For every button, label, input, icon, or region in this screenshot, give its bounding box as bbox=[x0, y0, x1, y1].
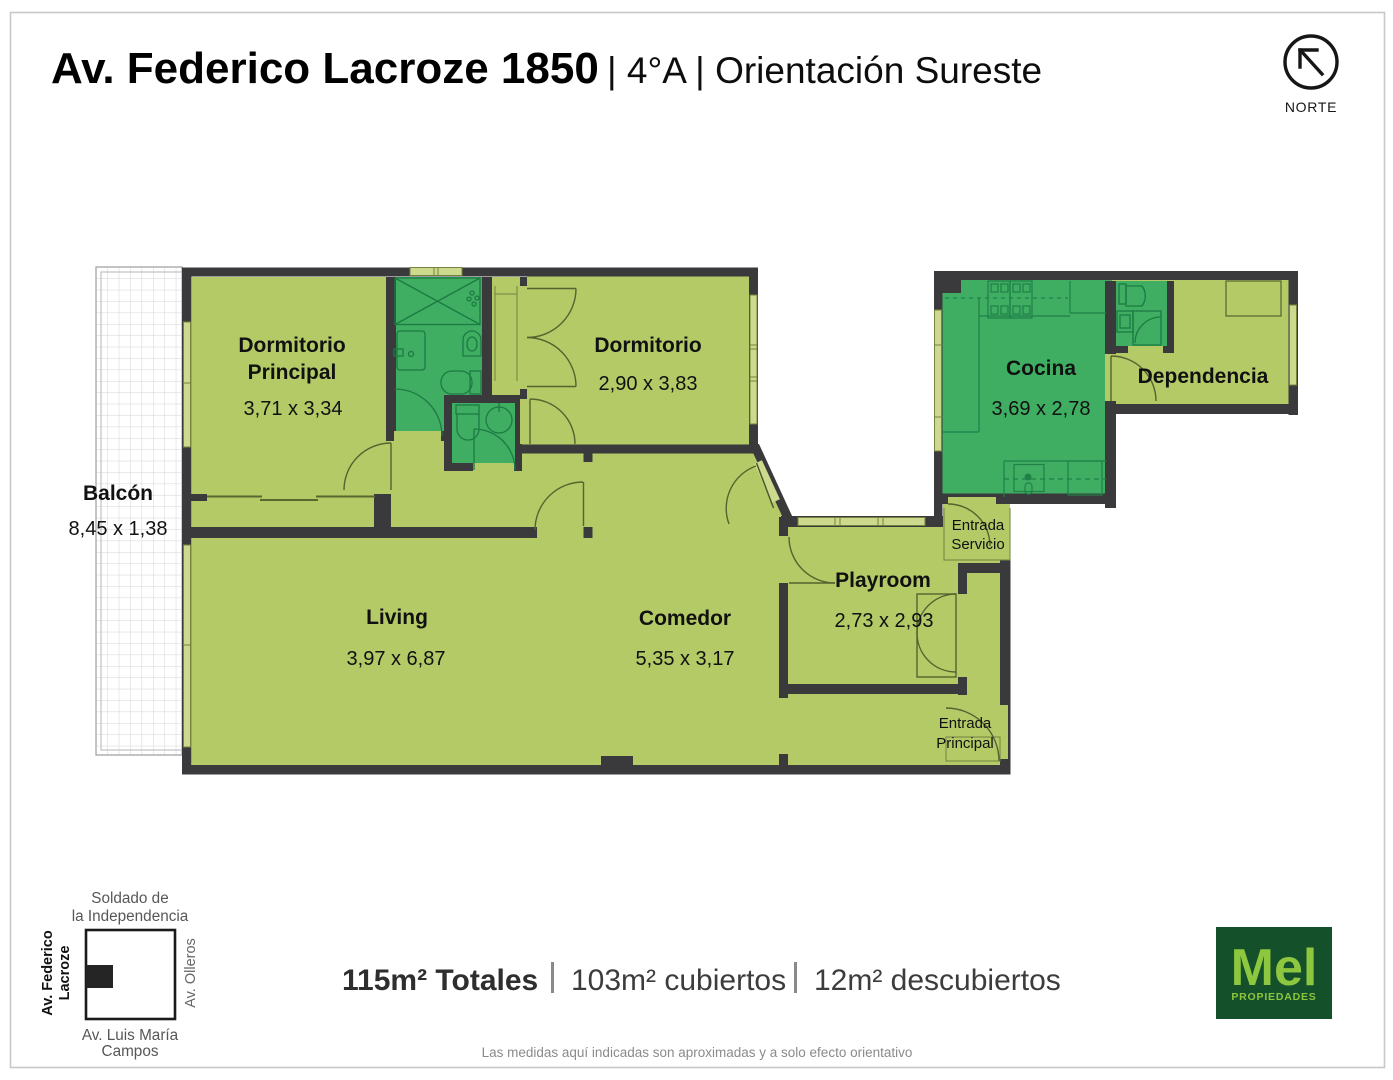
svg-text:Servicio: Servicio bbox=[951, 536, 1004, 553]
svg-text:Comedor: Comedor bbox=[639, 607, 731, 630]
svg-text:3,97 x 6,87: 3,97 x 6,87 bbox=[347, 648, 446, 670]
svg-text:Entrada: Entrada bbox=[952, 517, 1005, 534]
svg-text:Dormitorio: Dormitorio bbox=[238, 334, 345, 357]
svg-text:Dependencia: Dependencia bbox=[1138, 365, 1269, 388]
svg-text:la Independencia: la Independencia bbox=[72, 908, 189, 925]
svg-text:Av. FedericoLacroze: Av. FedericoLacroze bbox=[40, 930, 73, 1016]
svg-text:Balcón: Balcón bbox=[83, 482, 153, 505]
svg-text:3,69 x 2,78: 3,69 x 2,78 bbox=[992, 398, 1091, 420]
svg-text:2,73 x 2,93: 2,73 x 2,93 bbox=[835, 610, 934, 632]
svg-text:Av. Olleros: Av. Olleros bbox=[183, 938, 199, 1008]
svg-text:| 4°A | Orientación Sureste: | 4°A | Orientación Sureste bbox=[607, 50, 1042, 91]
svg-text:115m² Totales: 115m² Totales bbox=[342, 964, 538, 997]
svg-text:NORTE: NORTE bbox=[1285, 99, 1337, 115]
svg-text:5,35 x 3,17: 5,35 x 3,17 bbox=[636, 648, 735, 670]
svg-text:3,71 x 3,34: 3,71 x 3,34 bbox=[244, 398, 343, 420]
svg-text:2,90 x 3,83: 2,90 x 3,83 bbox=[599, 373, 698, 395]
svg-text:Cocina: Cocina bbox=[1006, 357, 1076, 380]
svg-text:Av. Luis María: Av. Luis María bbox=[82, 1027, 179, 1044]
svg-text:Principal: Principal bbox=[936, 735, 994, 752]
svg-text:Av. Federico Lacroze 1850: Av. Federico Lacroze 1850 bbox=[51, 44, 599, 93]
svg-text:Entrada: Entrada bbox=[939, 715, 992, 732]
svg-text:Principal: Principal bbox=[248, 361, 337, 384]
svg-text:8,45 x 1,38: 8,45 x 1,38 bbox=[69, 518, 168, 540]
svg-text:Playroom: Playroom bbox=[835, 569, 931, 592]
svg-text:Dormitorio: Dormitorio bbox=[594, 334, 701, 357]
svg-text:Soldado de: Soldado de bbox=[91, 890, 168, 907]
svg-text:103m² cubiertos: 103m² cubiertos bbox=[571, 964, 786, 997]
svg-text:Las medidas aquí indicadas son: Las medidas aquí indicadas son aproximad… bbox=[482, 1045, 913, 1060]
svg-text:12m² descubiertos: 12m² descubiertos bbox=[814, 964, 1061, 997]
svg-text:PROPIEDADES: PROPIEDADES bbox=[1231, 991, 1316, 1003]
svg-text:Campos: Campos bbox=[102, 1043, 159, 1060]
svg-text:Living: Living bbox=[366, 606, 428, 629]
svg-text:Mel: Mel bbox=[1231, 939, 1318, 997]
